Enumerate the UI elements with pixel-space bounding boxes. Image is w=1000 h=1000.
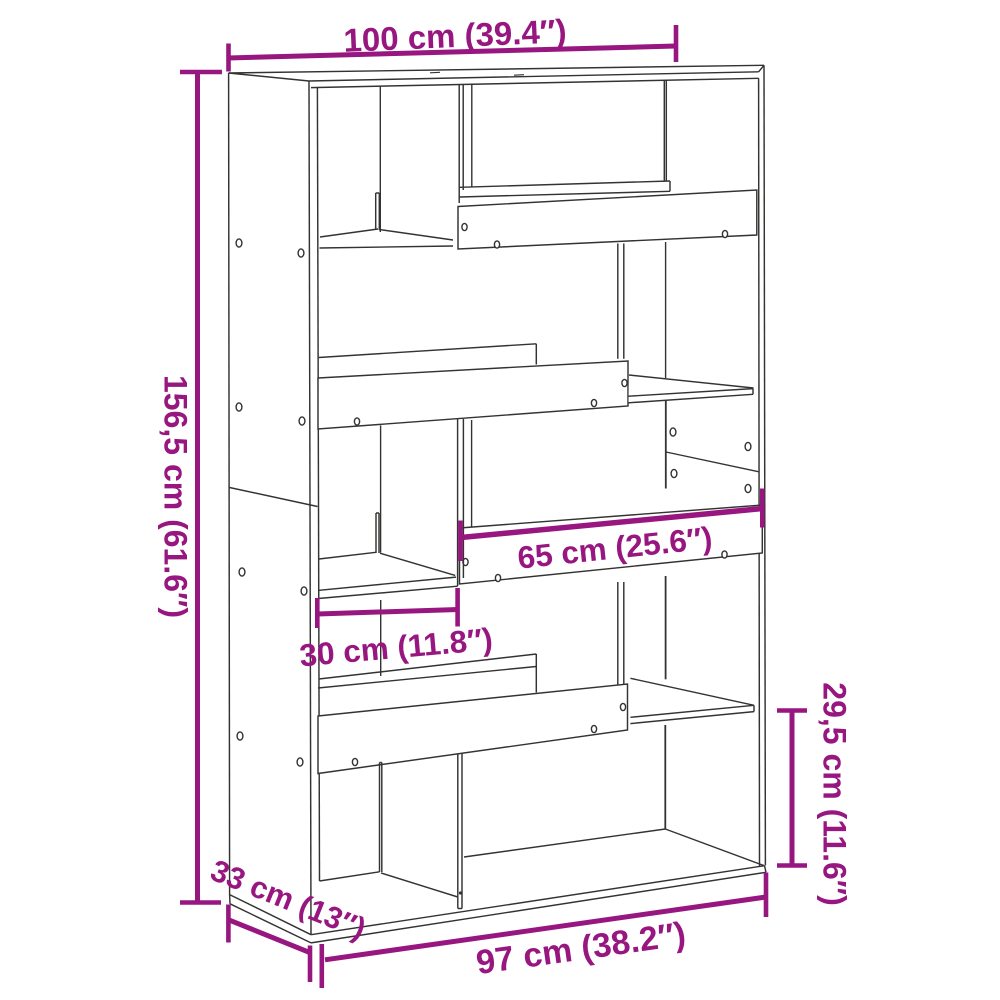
svg-text:156,5 cm (61.6″): 156,5 cm (61.6″) (158, 375, 194, 618)
svg-text:29,5 cm (11.6″): 29,5 cm (11.6″) (817, 682, 853, 905)
svg-text:30 cm (11.8″): 30 cm (11.8″) (298, 621, 494, 674)
